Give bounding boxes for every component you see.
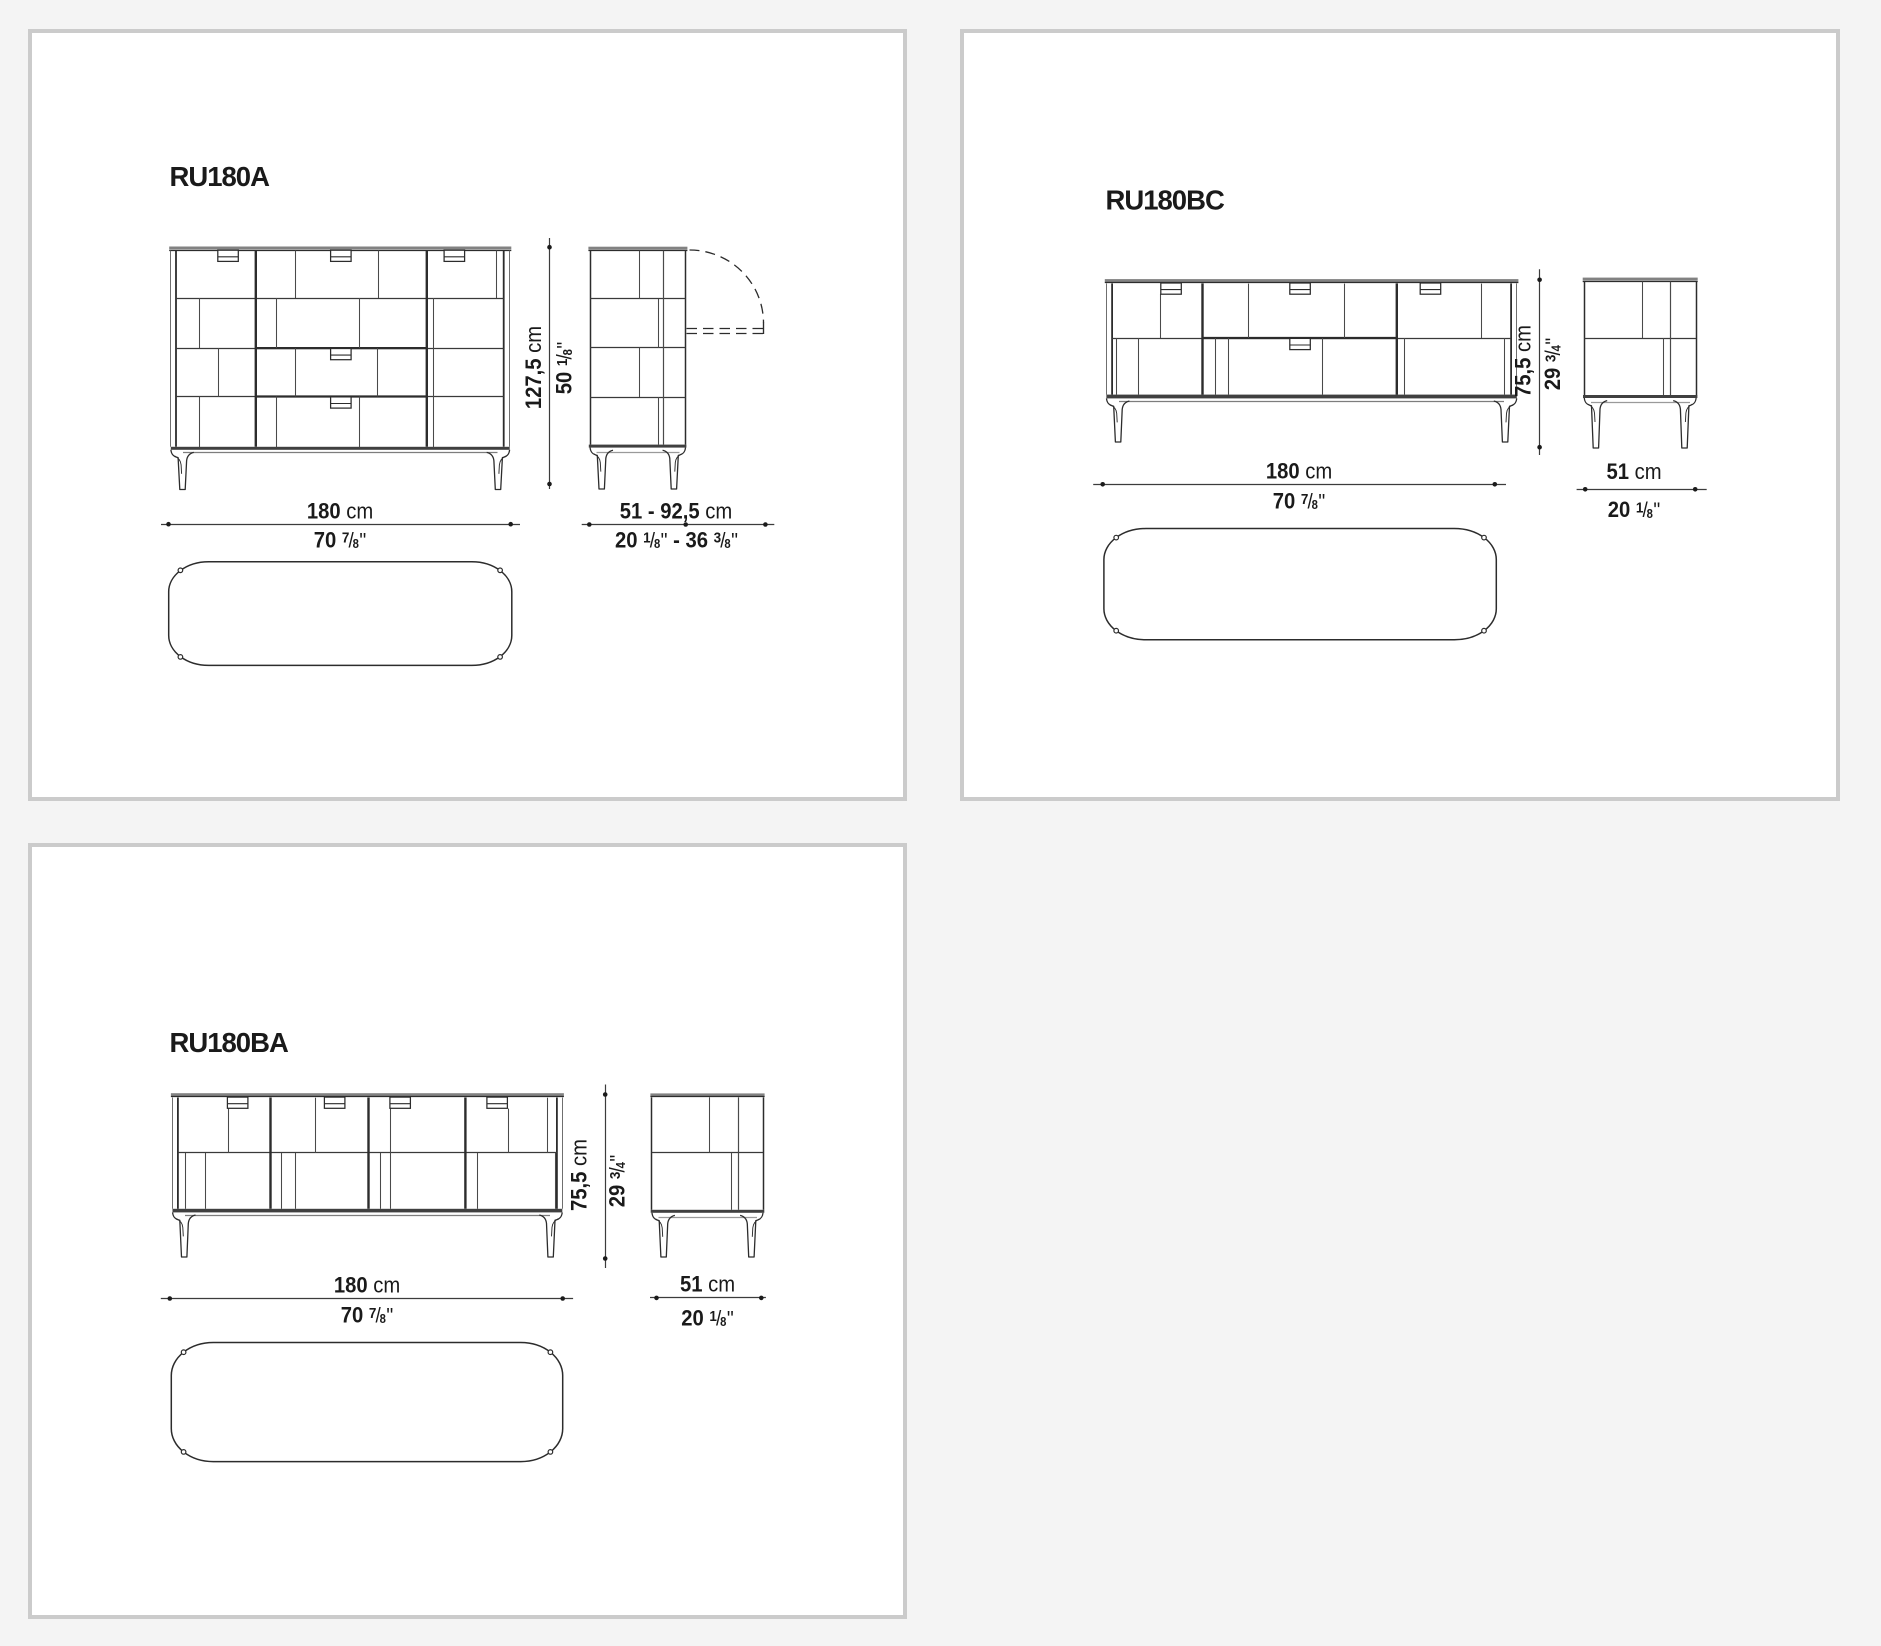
svg-text:180 cm: 180 cm	[334, 1272, 400, 1297]
svg-text:127,5 cm: 127,5 cm	[521, 326, 546, 409]
svg-text:180 cm: 180 cm	[1266, 458, 1332, 483]
svg-text:RU180BC: RU180BC	[1106, 185, 1225, 216]
svg-text:75,5 cm: 75,5 cm	[1511, 325, 1536, 397]
svg-text:51 cm: 51 cm	[680, 1271, 735, 1296]
svg-text:180 cm: 180 cm	[307, 499, 373, 524]
svg-text:RU180BA: RU180BA	[170, 1027, 289, 1058]
svg-text:51 - 92,5 cm: 51 - 92,5 cm	[620, 499, 732, 524]
svg-text:75,5 cm: 75,5 cm	[567, 1139, 592, 1211]
svg-text:51 cm: 51 cm	[1606, 459, 1661, 484]
svg-text:RU180A: RU180A	[170, 161, 271, 192]
svg-text:20 1/8" - 36 3/8": 20 1/8" - 36 3/8"	[615, 527, 738, 552]
